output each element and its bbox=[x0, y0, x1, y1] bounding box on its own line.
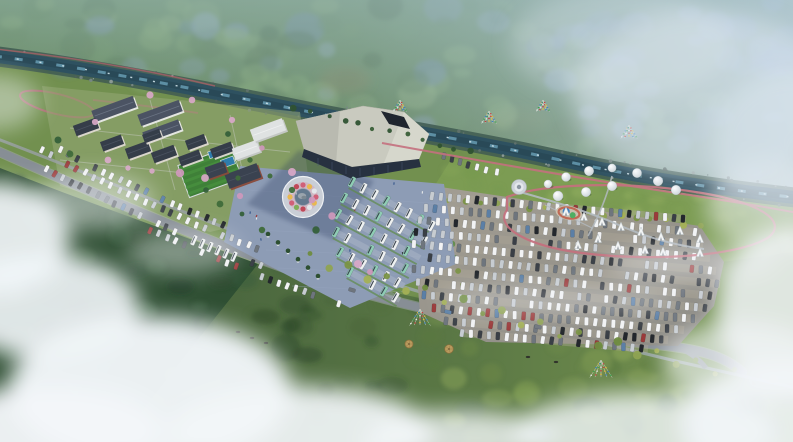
blossom-tree bbox=[189, 97, 196, 104]
green-tree bbox=[240, 212, 245, 217]
green-tree bbox=[247, 157, 252, 162]
circular-plaza bbox=[512, 180, 527, 195]
blossom-tree bbox=[146, 91, 153, 98]
green-tree bbox=[259, 227, 265, 233]
blossom-tree bbox=[201, 174, 209, 182]
pedestrian bbox=[422, 191, 423, 193]
blossom-tree bbox=[259, 145, 264, 150]
blossom-tree bbox=[328, 212, 335, 219]
green-tree bbox=[55, 137, 62, 144]
green-tree bbox=[235, 175, 240, 180]
blossom-tree bbox=[92, 119, 98, 125]
green-tree bbox=[312, 226, 319, 233]
blossom-tree bbox=[125, 165, 130, 170]
blossom-tree bbox=[367, 269, 373, 275]
blossom-tree bbox=[229, 117, 235, 123]
blossom-tree bbox=[149, 168, 154, 173]
blossom-tree bbox=[309, 197, 316, 204]
pedestrian bbox=[349, 249, 350, 251]
thatched-hut bbox=[405, 340, 413, 348]
blossom-tree bbox=[176, 169, 184, 177]
cloud bbox=[126, 230, 238, 274]
green-tree bbox=[203, 187, 209, 193]
green-tree bbox=[217, 201, 224, 208]
blossom-tree bbox=[288, 168, 296, 176]
green-tree bbox=[289, 187, 295, 193]
blossom-tree bbox=[237, 193, 243, 199]
green-tree bbox=[67, 151, 74, 158]
thatched-hut bbox=[445, 345, 454, 354]
cloud bbox=[440, 284, 680, 316]
blossom-tree bbox=[105, 157, 112, 164]
green-tree bbox=[268, 174, 273, 179]
green-tree bbox=[225, 131, 231, 137]
cloud bbox=[606, 245, 778, 281]
plaza-flower-emblem bbox=[283, 177, 324, 218]
aerial-site-rendering bbox=[0, 0, 793, 442]
pedestrian bbox=[393, 182, 394, 185]
blossom-tree bbox=[354, 260, 362, 268]
cloud bbox=[30, 174, 154, 230]
scene-canvas bbox=[0, 0, 793, 442]
